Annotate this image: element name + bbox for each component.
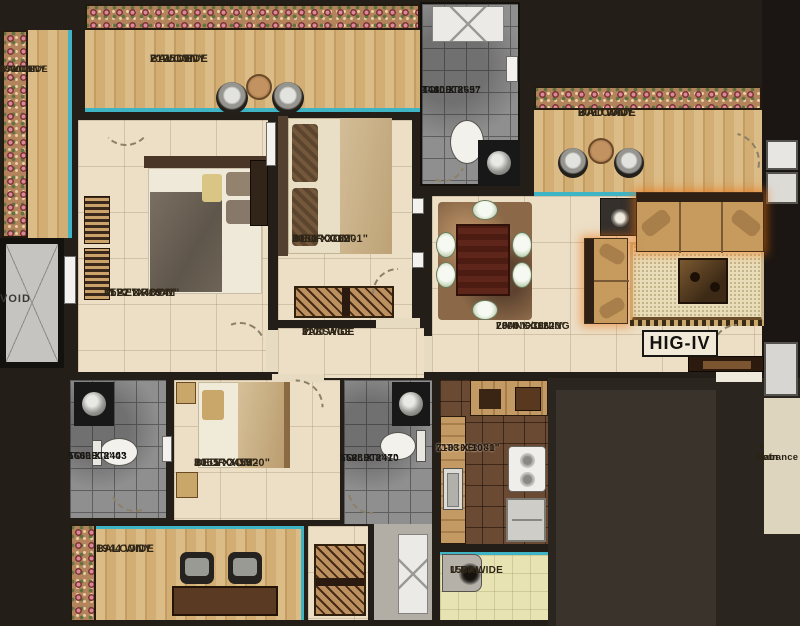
- toilet-top-window: [506, 56, 518, 82]
- window: [412, 252, 424, 268]
- kitchen-counter-top: [470, 380, 548, 416]
- window: [412, 198, 424, 214]
- shaft-block: [764, 342, 798, 396]
- sofa-two-seater: [584, 238, 628, 324]
- door-opening: [424, 336, 432, 372]
- entrance-lobby-floor: [764, 398, 800, 534]
- patio-table-icon: [588, 138, 614, 164]
- shaft-block: [766, 140, 798, 170]
- washbasin-icon: [392, 382, 430, 426]
- fridge-icon: [506, 498, 546, 542]
- shower-tray-icon: [432, 6, 504, 42]
- patio-chair-icon: [216, 82, 248, 114]
- exterior-panel: [556, 390, 716, 626]
- desk: [172, 586, 278, 616]
- balcony-left-floor: [28, 30, 72, 238]
- shaft-block: [766, 172, 798, 204]
- dresser-icon: [250, 160, 268, 226]
- patio-table-icon: [246, 74, 272, 100]
- hob-icon: [508, 446, 546, 492]
- master-bed: [144, 156, 266, 296]
- window: [64, 256, 76, 304]
- side-table: [176, 472, 198, 498]
- floral-border-top-right: [534, 86, 762, 110]
- desk-chair-icon: [180, 552, 214, 584]
- cushion: [202, 174, 222, 202]
- patio-chair-icon: [272, 82, 304, 114]
- floral-border-left: [2, 30, 28, 238]
- window: [266, 122, 276, 166]
- wardrobe-icon: [84, 196, 110, 244]
- wc-tank: [416, 430, 426, 462]
- wardrobe-icon: [314, 544, 366, 616]
- bolster-pillow: [729, 207, 762, 238]
- pillow: [202, 390, 224, 420]
- sofa-three-seater: [636, 192, 764, 252]
- shower-tray-icon: [398, 534, 428, 614]
- bolster-pillow: [597, 241, 627, 266]
- bolster-pillow: [597, 295, 627, 320]
- floral-border-top-left: [85, 4, 420, 30]
- dining-chair-icon: [472, 300, 498, 320]
- unit-type-badge: HIG-IV: [642, 330, 718, 357]
- dining-chair-icon: [512, 232, 532, 258]
- washbasin-icon: [74, 382, 114, 426]
- dining-chair-icon: [512, 262, 532, 288]
- blanket: [150, 192, 222, 292]
- floor-plan: BALCONY 2125 WIDE 7' WIDE BALCONY 1500 W…: [0, 0, 800, 626]
- coffee-table: [678, 258, 728, 304]
- headboard: [144, 156, 266, 168]
- side-table-lamp: [600, 198, 638, 236]
- side-table: [176, 382, 196, 404]
- patio-chair-icon: [614, 148, 644, 178]
- dining-chair-icon: [436, 262, 456, 288]
- bolster-pillow: [639, 207, 672, 238]
- kitchen-sink-icon: [443, 468, 463, 510]
- door-opening: [266, 330, 278, 372]
- patio-chair-icon: [558, 148, 588, 178]
- washbasin-icon: [478, 140, 520, 186]
- pillow: [292, 124, 318, 182]
- dining-chair-icon: [472, 200, 498, 220]
- dining-chair-icon: [436, 232, 456, 258]
- headboard: [278, 116, 288, 256]
- door-arc: [100, 94, 152, 146]
- floral-border-bottom: [70, 524, 96, 622]
- lamp-icon: [611, 209, 629, 227]
- window: [162, 436, 172, 462]
- desk-chair-icon: [228, 552, 262, 584]
- dining-table: [456, 224, 510, 296]
